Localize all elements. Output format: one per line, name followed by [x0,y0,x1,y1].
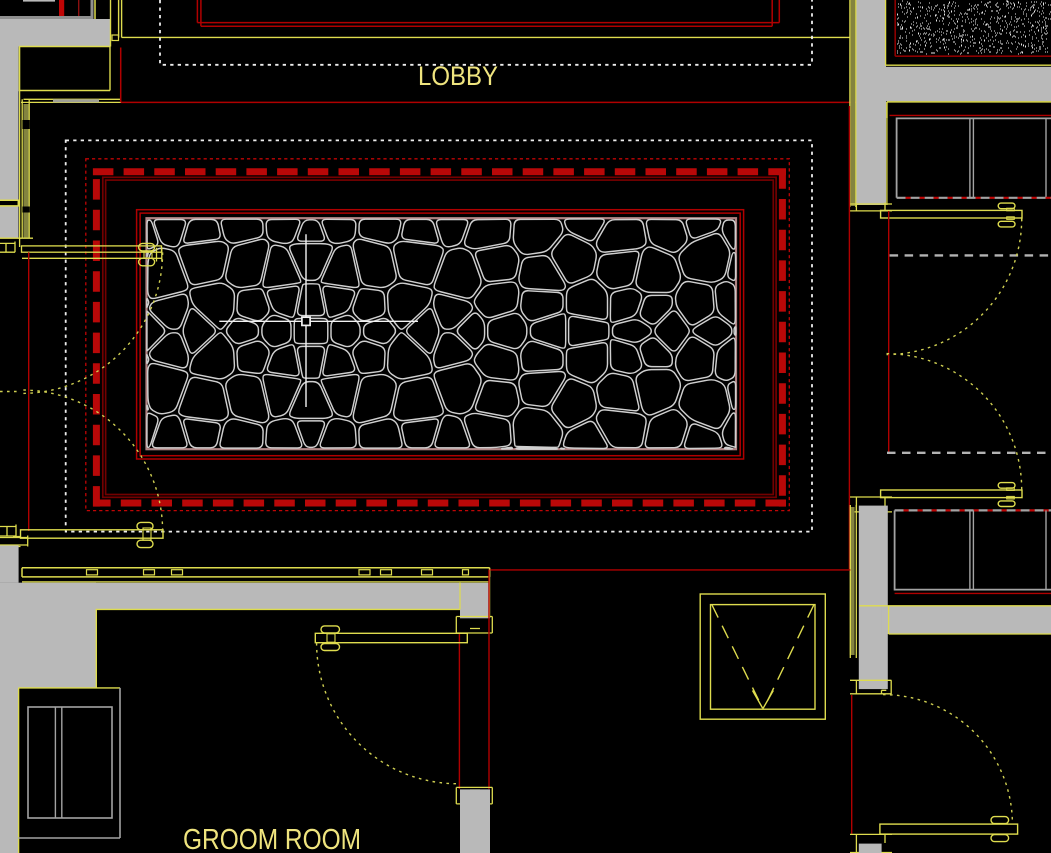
svg-text:GROOM ROOM: GROOM ROOM [183,824,361,853]
svg-text:LOBBY: LOBBY [418,61,498,91]
